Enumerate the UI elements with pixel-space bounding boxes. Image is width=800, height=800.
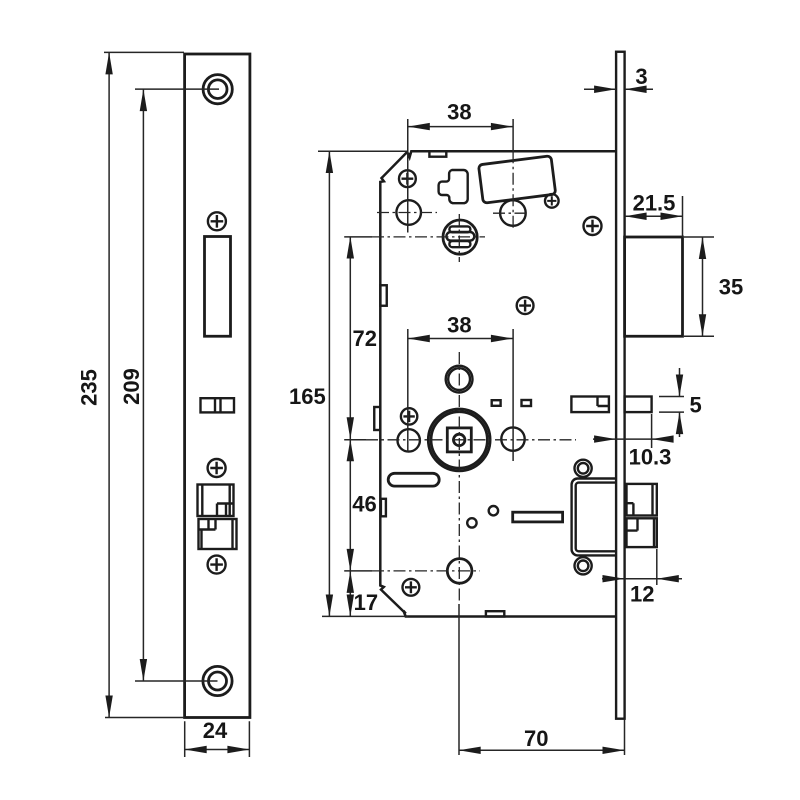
- svg-text:209: 209: [119, 368, 144, 405]
- svg-text:38: 38: [447, 100, 471, 125]
- svg-text:72: 72: [353, 326, 377, 351]
- svg-text:35: 35: [719, 275, 743, 300]
- svg-text:17: 17: [354, 590, 378, 615]
- svg-text:235: 235: [77, 369, 102, 406]
- svg-text:165: 165: [289, 384, 326, 409]
- svg-text:12: 12: [630, 581, 654, 606]
- svg-text:46: 46: [352, 492, 376, 517]
- svg-text:3: 3: [635, 64, 647, 89]
- svg-text:21.5: 21.5: [633, 191, 676, 216]
- svg-text:10.3: 10.3: [629, 445, 672, 470]
- svg-text:24: 24: [203, 718, 228, 743]
- svg-text:38: 38: [447, 313, 471, 338]
- svg-text:5: 5: [690, 393, 702, 418]
- svg-text:70: 70: [524, 726, 548, 751]
